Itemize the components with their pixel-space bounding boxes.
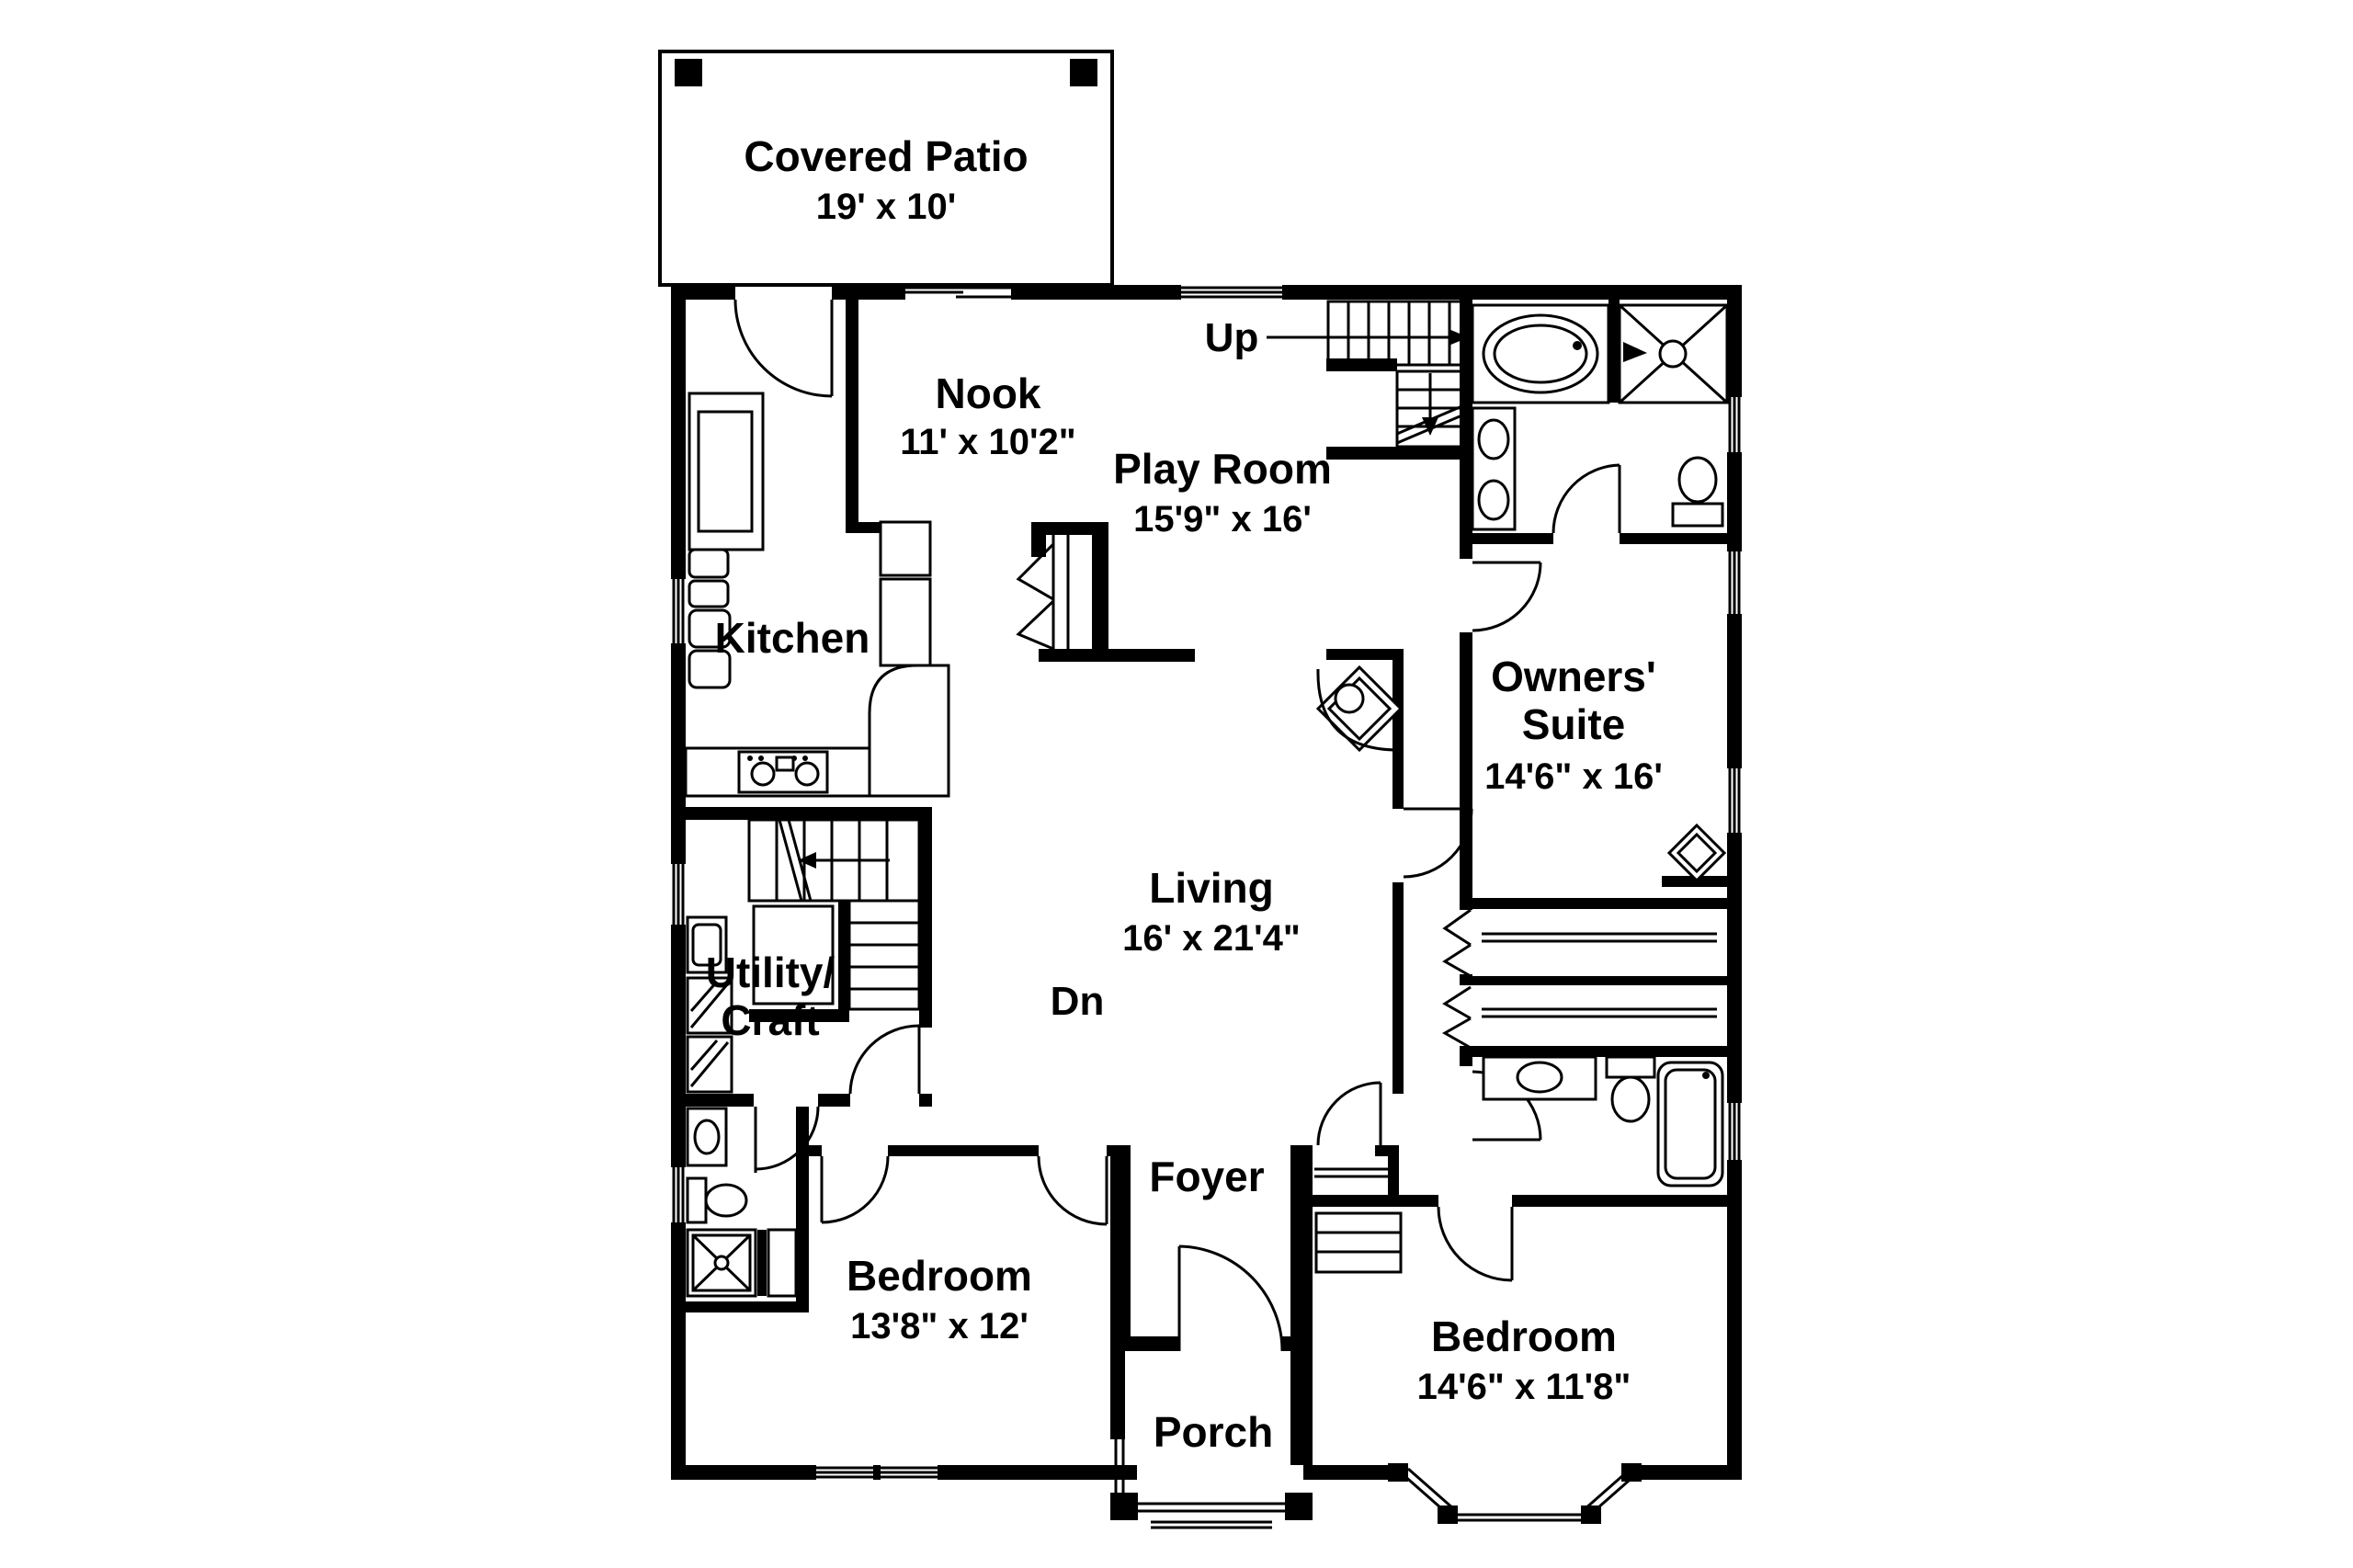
bedroom-right-dresser (1316, 1213, 1401, 1272)
suite-closet-fixtures (1482, 934, 1717, 1017)
master-bath-door (1553, 465, 1620, 533)
suite-corner-unit (1669, 825, 1724, 881)
label-porch: Porch (1154, 1408, 1273, 1456)
label-owners-suite-1: Owners' (1491, 653, 1656, 700)
label-nook-dims: 11' x 10'2" (900, 422, 1075, 462)
label-covered-patio: Covered Patio (744, 132, 1028, 180)
label-owners-suite-dims: 14'6" x 16' (1484, 756, 1663, 797)
kitchen-sink (689, 550, 728, 577)
master-vanity (1472, 408, 1515, 529)
suite-window-2 (1730, 768, 1739, 833)
curved-bar-counter (870, 665, 949, 796)
floor-plan-page: Covered Patio 19' x 10' Nook 11' x 10'2"… (0, 0, 2353, 1568)
master-tub (1472, 305, 1608, 403)
bedroom-right-door (1438, 1207, 1512, 1280)
label-bedroom-left-dims: 13'8" x 12' (850, 1306, 1029, 1346)
bath-left-window (674, 1167, 683, 1222)
stairs-up (1267, 301, 1471, 447)
stove (739, 752, 827, 792)
bath2-tub (1658, 1062, 1722, 1186)
foyer-closet-door (1318, 1083, 1381, 1145)
label-play-room-dims: 15'9" x 16' (1133, 499, 1312, 540)
counter-end-cabinet (881, 522, 930, 575)
master-shower (1620, 305, 1727, 403)
label-stairs-up: Up (1205, 315, 1259, 360)
bath2-toilet (1607, 1057, 1654, 1121)
label-foyer: Foyer (1149, 1153, 1264, 1200)
basement-stair-door (850, 1026, 919, 1094)
utility-window (674, 864, 683, 925)
floor-plan-canvas: Covered Patio 19' x 10' Nook 11' x 10'2"… (0, 0, 2353, 1568)
suite-window-1 (1730, 551, 1739, 614)
label-stairs-down: Dn (1051, 979, 1105, 1024)
master-bath-fixtures (1472, 305, 1727, 529)
bath-left-shower (688, 1230, 756, 1296)
master-bath-window (1730, 397, 1739, 452)
label-bedroom-right-dims: 14'6" x 11'8" (1417, 1367, 1631, 1407)
dryer (688, 1037, 732, 1092)
bedroom-left-door-2 (1039, 1156, 1107, 1224)
label-bedroom-left: Bedroom (847, 1252, 1032, 1300)
bath2-fixtures (1483, 1057, 1722, 1186)
owners-suite-door (1472, 562, 1540, 631)
bedroom-left-window (816, 1465, 938, 1480)
linen-closet (768, 1230, 796, 1296)
bath-left-toilet (688, 1178, 746, 1222)
label-covered-patio-dims: 19' x 10' (816, 187, 956, 227)
patio-entry-door (735, 300, 832, 396)
label-bedroom-right: Bedroom (1431, 1312, 1617, 1360)
foyer-closet-shelves (1314, 1169, 1388, 1176)
patio-slider-window (905, 288, 1011, 297)
patio-post-left (675, 59, 702, 86)
label-living: Living (1149, 864, 1273, 912)
bedroom-left-door-1 (822, 1156, 888, 1222)
label-utility-2: Craft (721, 996, 819, 1044)
label-living-dims: 16' x 21'4" (1122, 918, 1301, 959)
bath2-window (1730, 1103, 1739, 1160)
bath2-vanity (1483, 1057, 1596, 1099)
kitchen-window (674, 579, 683, 643)
label-nook: Nook (936, 369, 1041, 417)
bath-left-fixtures (688, 1108, 796, 1296)
bath-left-sink (695, 1120, 719, 1153)
playroom-window (1181, 288, 1282, 297)
fireplace (1318, 667, 1403, 750)
bay-window (1388, 1463, 1642, 1524)
patio-post-right (1070, 59, 1097, 86)
porch-post-right (1285, 1493, 1313, 1520)
master-toilet (1673, 458, 1722, 526)
front-entry-door (1179, 1246, 1282, 1351)
label-owners-suite-2: Suite (1522, 700, 1625, 748)
porch-post-left (1110, 1493, 1138, 1520)
label-kitchen: Kitchen (715, 614, 870, 662)
label-play-room: Play Room (1113, 445, 1332, 493)
label-utility-1: Utility/ (706, 949, 835, 996)
